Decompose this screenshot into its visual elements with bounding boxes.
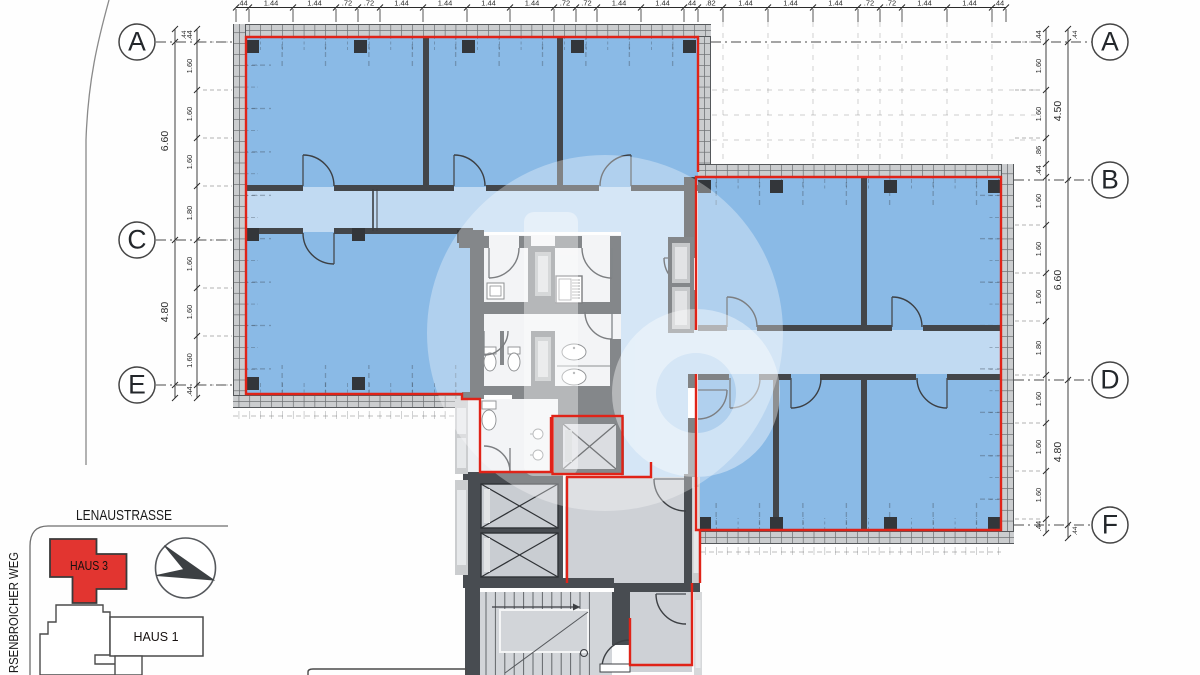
svg-text:4.80: 4.80 (159, 302, 171, 323)
svg-text:HAUS 1: HAUS 1 (134, 630, 179, 644)
svg-text:1.60: 1.60 (185, 59, 194, 74)
svg-text:1.60: 1.60 (185, 257, 194, 272)
svg-text:A: A (1101, 27, 1119, 57)
svg-text:1.44: 1.44 (783, 0, 798, 8)
svg-text:.44: .44 (1072, 30, 1079, 39)
svg-text:.72: .72 (560, 0, 570, 8)
svg-text:B: B (1101, 165, 1119, 195)
svg-text:1.60: 1.60 (185, 305, 194, 320)
svg-text:1.60: 1.60 (1034, 194, 1043, 209)
svg-text:1.60: 1.60 (185, 353, 194, 368)
svg-text:1.60: 1.60 (1034, 59, 1043, 74)
svg-text:.44: .44 (994, 0, 1004, 8)
svg-text:1.60: 1.60 (1034, 440, 1043, 455)
svg-text:.86: .86 (1034, 146, 1043, 156)
svg-text:C: C (127, 225, 146, 255)
svg-text:1.60: 1.60 (185, 155, 194, 170)
svg-text:HAUS 3: HAUS 3 (70, 558, 108, 573)
svg-text:.44: .44 (686, 0, 696, 8)
svg-text:.44: .44 (1034, 30, 1043, 40)
svg-text:.44: .44 (1034, 165, 1043, 175)
svg-text:1.44: 1.44 (307, 0, 322, 8)
svg-text:1.60: 1.60 (1034, 242, 1043, 257)
svg-text:1.60: 1.60 (1034, 392, 1043, 407)
svg-text:1.44: 1.44 (738, 0, 753, 8)
svg-text:1.44: 1.44 (481, 0, 496, 8)
svg-text:1.80: 1.80 (1034, 341, 1043, 356)
svg-text:.72: .72 (364, 0, 374, 8)
svg-text:.82: .82 (705, 0, 715, 8)
svg-text:D: D (1100, 365, 1119, 395)
svg-text:1.60: 1.60 (1034, 107, 1043, 122)
svg-text:.44: .44 (1034, 521, 1043, 531)
svg-text:A: A (128, 27, 146, 57)
svg-text:.44: .44 (185, 386, 194, 396)
svg-text:1.60: 1.60 (1034, 290, 1043, 305)
svg-text:6.60: 6.60 (159, 131, 171, 152)
svg-text:1.44: 1.44 (828, 0, 843, 8)
svg-text:6.60: 6.60 (1052, 270, 1064, 291)
svg-text:F: F (1102, 510, 1118, 540)
svg-text:RSENBROICHER WEG: RSENBROICHER WEG (6, 552, 21, 673)
svg-text:.72: .72 (864, 0, 874, 8)
svg-text:1.44: 1.44 (438, 0, 453, 8)
svg-text:.44: .44 (1072, 526, 1079, 535)
svg-text:LENAUSTRASSE: LENAUSTRASSE (76, 507, 172, 524)
svg-text:1.80: 1.80 (185, 206, 194, 221)
svg-text:1.44: 1.44 (917, 0, 932, 8)
svg-text:E: E (128, 370, 146, 400)
svg-text:1.44: 1.44 (525, 0, 540, 8)
svg-text:1.44: 1.44 (655, 0, 670, 8)
svg-text:.44: .44 (181, 30, 188, 39)
svg-text:1.44: 1.44 (264, 0, 279, 8)
svg-text:4.80: 4.80 (1052, 442, 1064, 463)
svg-text:.72: .72 (581, 0, 591, 8)
svg-text:4.50: 4.50 (1052, 101, 1064, 122)
svg-text:1.44: 1.44 (612, 0, 627, 8)
svg-text:.72: .72 (342, 0, 352, 8)
svg-text:.44: .44 (237, 0, 247, 8)
svg-text:1.44: 1.44 (962, 0, 977, 8)
svg-text:1.44: 1.44 (394, 0, 409, 8)
svg-text:1.60: 1.60 (1034, 488, 1043, 503)
svg-text:1.60: 1.60 (185, 107, 194, 122)
svg-text:.72: .72 (886, 0, 896, 8)
